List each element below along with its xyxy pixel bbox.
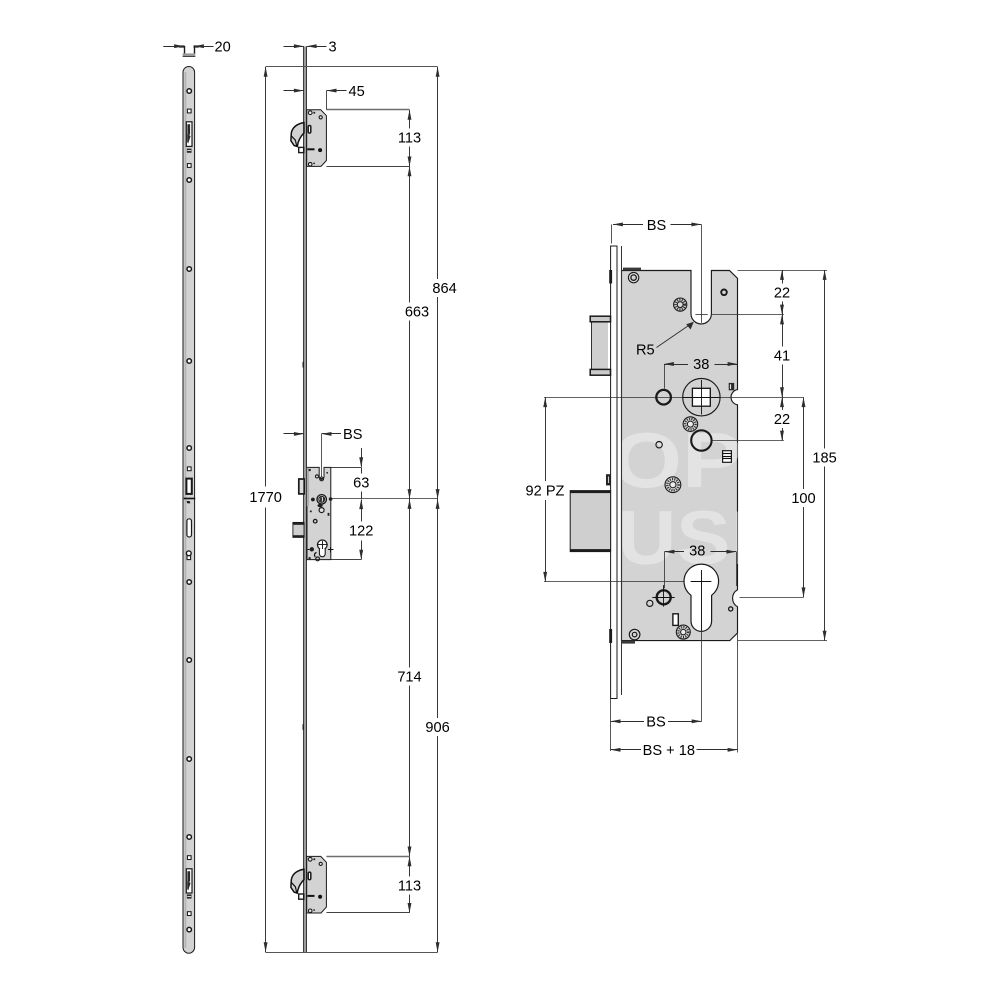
svg-text:185: 185	[812, 451, 836, 467]
svg-text:BS + 18: BS + 18	[643, 743, 695, 759]
svg-text:22: 22	[774, 286, 790, 302]
svg-text:3: 3	[329, 39, 337, 55]
svg-text:38: 38	[689, 543, 705, 559]
svg-text:714: 714	[397, 670, 421, 686]
svg-text:BS: BS	[646, 715, 666, 731]
svg-text:20: 20	[215, 39, 231, 55]
svg-text:41: 41	[774, 349, 790, 365]
svg-text:BS: BS	[343, 427, 363, 443]
svg-text:HOUSE: HOUSE	[495, 496, 785, 581]
svg-text:122: 122	[349, 524, 373, 540]
svg-text:R5: R5	[636, 343, 655, 359]
svg-text:38: 38	[693, 357, 709, 373]
svg-text:63: 63	[353, 475, 369, 491]
svg-text:113: 113	[398, 131, 421, 147]
svg-text:BS: BS	[647, 218, 667, 234]
svg-text:92 PZ: 92 PZ	[526, 483, 565, 499]
svg-text:113: 113	[398, 879, 421, 895]
svg-text:22: 22	[774, 412, 790, 428]
svg-text:45: 45	[349, 84, 365, 100]
svg-text:864: 864	[432, 281, 456, 297]
svg-text:663: 663	[405, 305, 429, 321]
svg-text:906: 906	[425, 720, 449, 736]
svg-text:1770: 1770	[249, 490, 281, 506]
svg-text:100: 100	[791, 491, 815, 507]
